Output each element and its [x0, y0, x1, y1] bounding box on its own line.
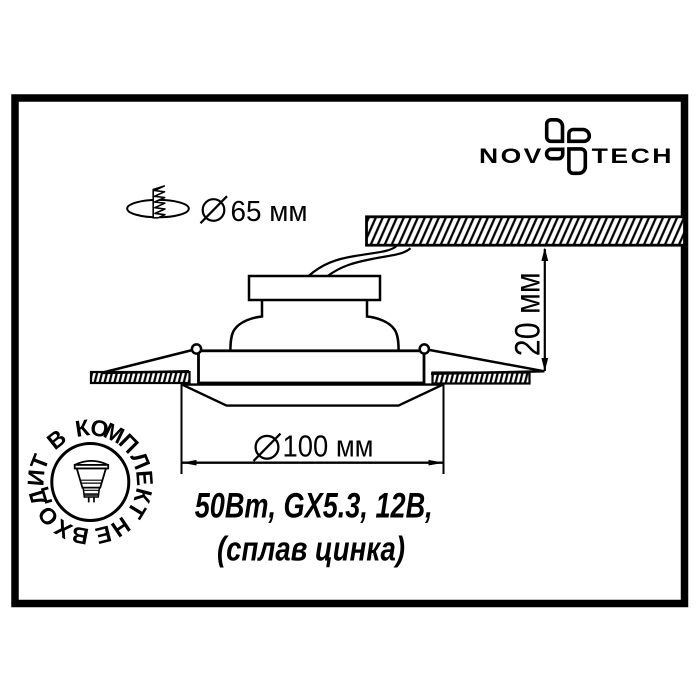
svg-text:50Вm, GX5.3, 12В,: 50Вm, GX5.3, 12В,	[195, 487, 433, 526]
svg-text:NOV: NOV	[479, 144, 544, 168]
svg-text:100 мм: 100 мм	[283, 429, 374, 463]
svg-text:20 мм: 20 мм	[509, 272, 548, 356]
svg-text:TECH: TECH	[592, 144, 674, 168]
svg-text:65 мм: 65 мм	[231, 196, 308, 228]
svg-text:Е: Е	[131, 469, 158, 486]
svg-text:(сплав цинка): (сплав цинка)	[217, 531, 405, 569]
